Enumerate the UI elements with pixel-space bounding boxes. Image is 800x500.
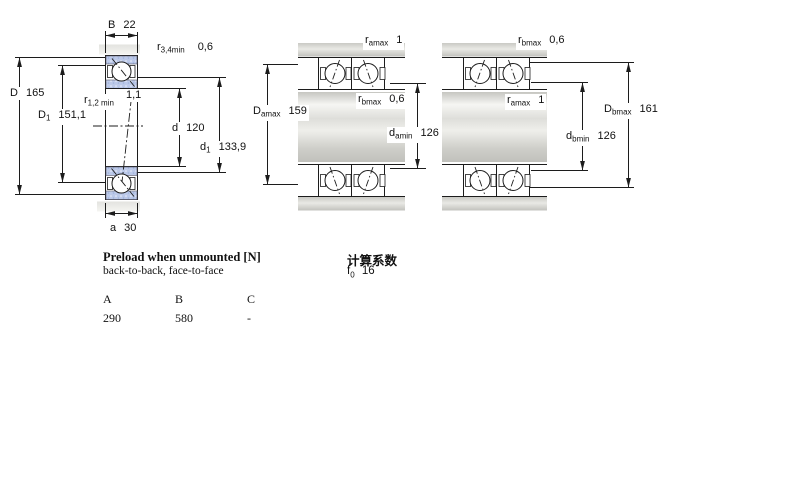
preload-col-c: C [247,292,319,307]
dim-label-D1: D1151,1 [36,109,88,125]
dim-label-dbmin: dbmin126 [564,130,618,146]
dim-label-ramax-right: ramax1 [505,94,546,110]
dim-label-rbmax-right: rbmax0,6 [516,34,567,50]
preload-table: A B C 290 580 - [103,292,319,326]
housing-block [298,197,405,211]
dim-label-Damax: Damax159 [251,105,309,121]
preload-col-a: A [103,292,175,307]
dim-label-Dbmax: Dbmax161 [602,103,660,119]
dim-label-d: d120 [170,122,206,135]
dim-label-r12min: r1,2 min [82,94,116,110]
dim-label-r34min: r3,4min0,6 [155,41,215,57]
preload-value-a: 290 [103,311,175,326]
preload-value-b: 580 [175,311,247,326]
f0-factor: f0 16 [347,265,375,279]
left-bearing-section [93,45,143,212]
preload-value-c: - [247,311,319,326]
right-arrangement-diagram [442,43,547,211]
dim-label-damin: damin126 [387,127,441,143]
preload-col-b: B [175,292,247,307]
preload-subtitle: back-to-back, face-to-face [103,265,224,277]
dim-label-D: D165 [8,87,46,100]
ball [112,174,131,193]
dim-label-B: B22 [106,19,138,32]
bearing-technical-drawing [0,0,800,340]
dim-value-r12min: 1,1 [124,89,143,102]
dim-label-a: a30 [108,222,138,235]
preload-title: Preload when unmounted [N] [103,250,261,265]
dim-label-d1: d1133,9 [198,141,248,157]
shaft-hint-bottom [97,202,140,212]
housing-block [442,197,547,211]
dim-label-ramax-middle: ramax1 [363,34,404,50]
dim-label-rbmax-middle: rbmax0,6 [356,93,407,109]
bearing-datasheet-page: B22 r3,4min0,6 D165 D1151,1 r1,2 min 1,1… [0,0,800,500]
